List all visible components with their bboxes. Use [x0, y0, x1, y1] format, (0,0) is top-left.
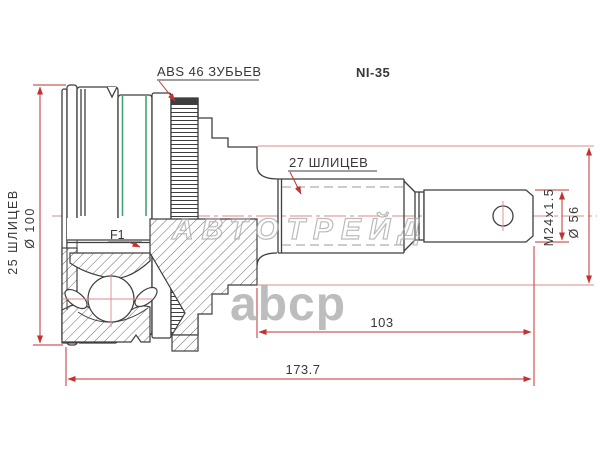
- splines-leader: [290, 172, 301, 194]
- hub-splines-label: 25 ШЛИЦЕВ: [6, 189, 20, 274]
- abs-ring-label: ABS 46 ЗУБЬЕВ: [157, 64, 262, 79]
- shaft-splines-label: 27 ШЛИЦЕВ: [289, 155, 368, 170]
- thread-dim: M24x1.5: [542, 188, 556, 246]
- end-diameter-dim: Ø 56: [567, 205, 581, 238]
- abs-ring-section: [172, 335, 198, 351]
- part-number: NI-35: [356, 65, 390, 80]
- total-length-dim: 173.7: [285, 362, 320, 377]
- threaded-end: [424, 190, 533, 242]
- neck-step-profile-top: [198, 98, 278, 179]
- body-diameter-dim: Ø 100: [23, 207, 37, 249]
- watermark-brand: АВТОТРЕЙД: [171, 211, 428, 246]
- drawing-canvas: ABS 46 ЗУБЬЕВ NI-35 27 ШЛИЦЕВ F1 103 173…: [0, 0, 600, 450]
- watermark-logo: abcp: [230, 278, 346, 331]
- grease-code-label: F1: [110, 228, 125, 242]
- cv-joint-technical-drawing: ABS 46 ЗУБЬЕВ NI-35 27 ШЛИЦЕВ F1 103 173…: [0, 0, 600, 450]
- thread-length-dim: 103: [370, 315, 393, 330]
